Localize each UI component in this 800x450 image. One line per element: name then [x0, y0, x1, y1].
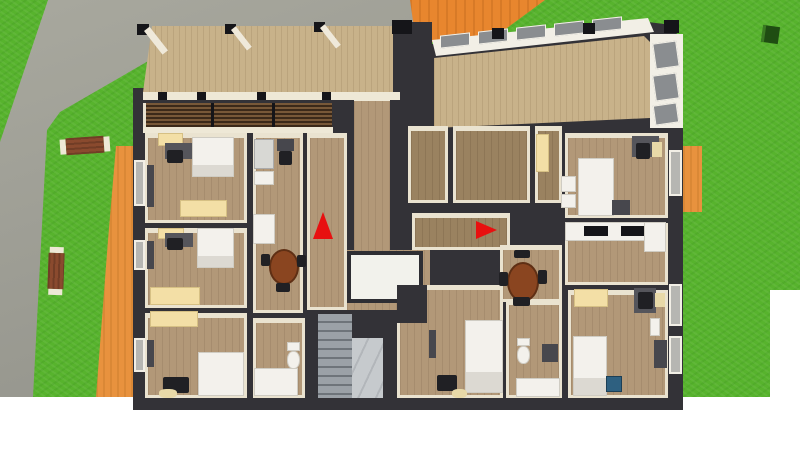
toilet-tank: [517, 338, 530, 346]
sunroom-post-cap: [492, 28, 504, 39]
round-dining-table: [269, 249, 299, 285]
wall-column-center-top: [393, 20, 411, 133]
tall-cabinet: [536, 134, 549, 172]
stair-landing: [352, 338, 383, 398]
corridor-upper-floor: [354, 100, 390, 255]
chair: [638, 292, 653, 309]
toilet-tank: [287, 342, 300, 351]
toilet-bowl: [517, 346, 530, 364]
window-left-wall: [134, 160, 145, 206]
chair: [279, 151, 292, 165]
slat-canopy-divider: [272, 103, 275, 127]
wardrobe: [574, 289, 608, 307]
wall-shelf: [650, 318, 660, 336]
wardrobe: [150, 311, 198, 327]
floor-plan-scene: [0, 0, 800, 450]
shelf: [561, 176, 576, 192]
pouf: [159, 389, 177, 398]
window-left-wall: [134, 240, 145, 270]
window-right-wall: [669, 336, 682, 374]
slat-canopy: [143, 103, 332, 127]
sink-vanity: [516, 378, 560, 397]
tv-panel: [429, 330, 436, 358]
bath-shelf: [542, 344, 558, 362]
tv-panel: [147, 241, 154, 269]
fridge: [254, 139, 274, 169]
cooktop: [584, 226, 608, 236]
bed-foot: [574, 378, 606, 395]
sunroom-post-cap: [583, 23, 595, 34]
bench-end: [48, 289, 62, 295]
stair-flight: [318, 314, 352, 398]
kitchen-appliance: [277, 139, 294, 151]
kitchen-cabinet: [254, 171, 274, 185]
chair: [499, 272, 508, 286]
seat: [652, 142, 662, 157]
deck-door-sill: [354, 95, 390, 101]
blue-bin: [606, 376, 622, 392]
nightstand: [612, 200, 630, 215]
wardrobe: [180, 200, 227, 217]
sunroom-window: [653, 102, 680, 125]
chair: [261, 254, 270, 266]
orange-walkway-right: [683, 146, 702, 212]
bed-foot: [193, 165, 233, 176]
chair: [276, 283, 290, 292]
green-waste-bin: [761, 25, 780, 44]
chair: [167, 150, 183, 163]
bed: [578, 158, 614, 216]
bench-end: [103, 136, 110, 151]
tv-panel: [147, 165, 154, 207]
kitchen-cabinet: [644, 222, 666, 252]
chair: [514, 250, 530, 258]
tv-panel: [147, 340, 154, 367]
bench-seat: [47, 253, 64, 290]
lawn-edge-cut: [770, 290, 800, 397]
chair: [538, 270, 547, 284]
cooktop: [621, 226, 645, 236]
chair: [167, 238, 183, 250]
bed-foot: [198, 256, 233, 267]
wall-column-cap: [392, 20, 412, 34]
chair: [513, 297, 530, 306]
shelf: [561, 194, 576, 208]
bed: [198, 352, 244, 396]
chair: [297, 255, 306, 267]
wall-notch: [397, 285, 427, 323]
small-room-middle-1-floor: [408, 126, 448, 203]
window-left-wall: [134, 338, 145, 372]
slat-canopy-divider: [211, 103, 214, 127]
garden-bench-vertical: [46, 247, 66, 296]
bench-seat: [65, 136, 104, 156]
wardrobe: [150, 287, 200, 305]
window-right-wall: [669, 284, 682, 326]
sunroom-window: [652, 40, 679, 69]
sunroom-window: [652, 72, 679, 101]
garden-bench-horizontal: [59, 133, 110, 158]
pouf: [655, 293, 665, 307]
pouf: [452, 389, 467, 398]
toilet-bowl: [287, 351, 300, 369]
red-arrow-marker-up[interactable]: [313, 212, 333, 239]
wooden-balcony-deck: [143, 26, 400, 92]
kitchen-cabinet: [253, 214, 275, 244]
red-arrow-marker-right[interactable]: [476, 221, 497, 239]
small-room-middle-2-floor: [453, 126, 530, 203]
bed-foot: [466, 372, 502, 392]
sunroom-post-cap: [664, 20, 679, 33]
radiator: [654, 340, 667, 368]
round-dining-table: [507, 262, 539, 302]
sink-vanity: [254, 368, 298, 396]
window-right-wall: [669, 150, 682, 196]
chair: [636, 143, 650, 159]
